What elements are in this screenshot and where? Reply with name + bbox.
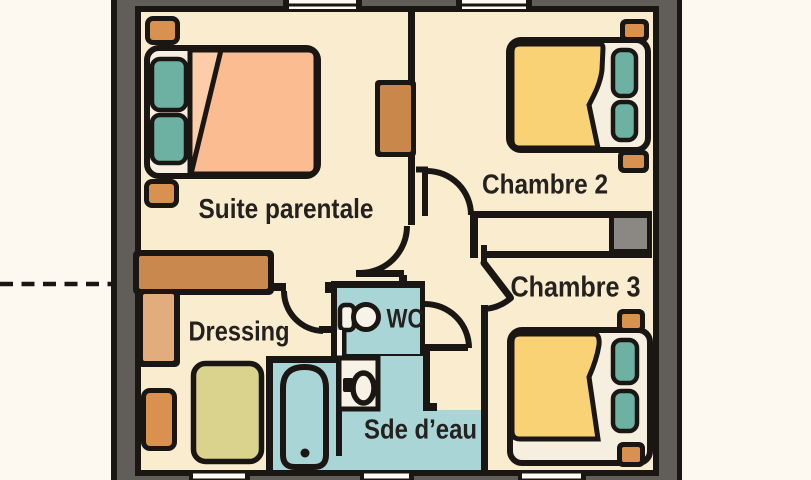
svg-text:Sde d’eau: Sde d’eau	[364, 414, 477, 445]
svg-text:Chambre 2: Chambre 2	[482, 169, 608, 200]
svg-text:Dressing: Dressing	[189, 316, 290, 347]
svg-text:WC: WC	[387, 304, 424, 334]
svg-text:Suite parentale: Suite parentale	[199, 193, 374, 224]
svg-text:Chambre 3: Chambre 3	[511, 272, 641, 304]
